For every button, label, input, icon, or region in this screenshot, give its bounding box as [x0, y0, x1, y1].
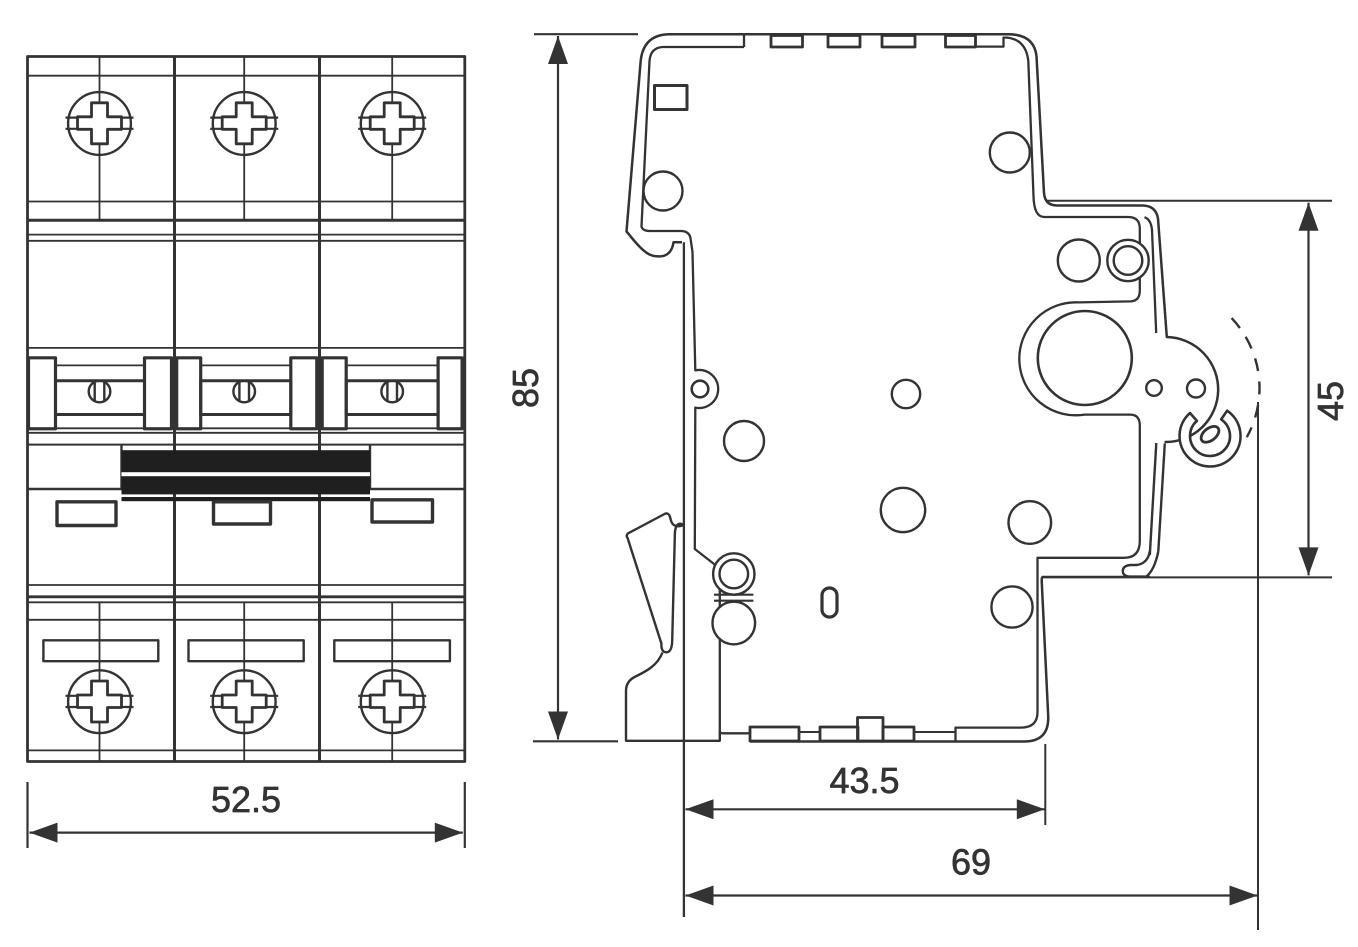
svg-text:45: 45 [1310, 381, 1351, 421]
svg-text:85: 85 [505, 368, 546, 408]
svg-text:43.5: 43.5 [829, 760, 899, 801]
svg-text:52.5: 52.5 [211, 779, 281, 820]
svg-text:69: 69 [951, 842, 991, 883]
